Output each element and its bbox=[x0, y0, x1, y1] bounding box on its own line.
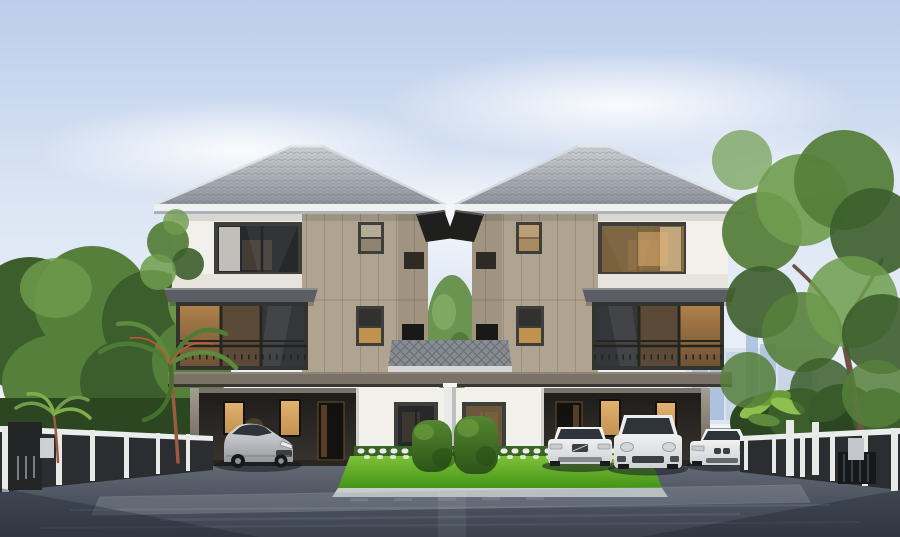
sedan-headlight bbox=[550, 444, 562, 449]
architectural-rendering bbox=[0, 0, 900, 537]
roadster-kidney-grille bbox=[714, 448, 721, 454]
gate-panel bbox=[40, 438, 54, 458]
roadster-windshield bbox=[703, 431, 742, 440]
gate-sign-panel bbox=[848, 438, 864, 460]
suv-windshield bbox=[622, 418, 674, 434]
gate-post bbox=[786, 420, 794, 476]
roadster-headlight bbox=[692, 446, 704, 451]
suv-headlight bbox=[621, 443, 634, 452]
sedan-windshield bbox=[557, 429, 603, 439]
house-left bbox=[154, 146, 456, 466]
post-reflection bbox=[438, 492, 466, 537]
suv-grille bbox=[632, 456, 664, 463]
scene-canvas bbox=[0, 0, 900, 537]
gate-post bbox=[812, 422, 819, 475]
